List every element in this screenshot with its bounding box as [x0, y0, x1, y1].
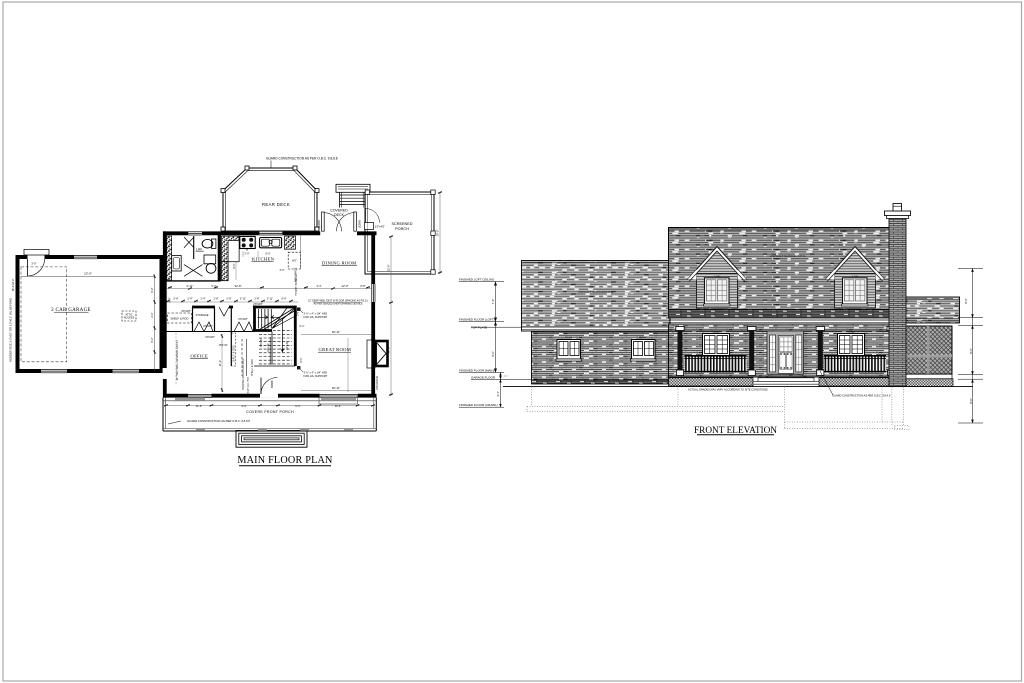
svg-text:8'-0": 8'-0" [964, 298, 968, 304]
svg-text:SHELF & ROD: SHELF & ROD [171, 317, 189, 321]
svg-text:KITCHEN: KITCHEN [252, 257, 275, 262]
svg-text:2'-0": 2'-0" [245, 253, 250, 256]
svg-text:8'-4": 8'-4" [282, 298, 287, 301]
svg-text:6'0": 6'0" [292, 259, 297, 263]
svg-text:SHELF & ROD: SHELF & ROD [251, 359, 254, 376]
svg-text:DECK: DECK [334, 213, 345, 217]
svg-text:2-2430: 2-2430 [565, 337, 573, 339]
svg-text:4'-1": 4'-1" [496, 391, 500, 397]
svg-text:ACTUAL GRADES MAY VARY ACC: ACTUAL GRADES MAY VARY ACCORDING TO SITE… [688, 388, 769, 392]
svg-text:7 ¼": 7 ¼" [504, 375, 509, 378]
svg-text:HEADER SIZE 3-2"x10" OR 3.5"x1: HEADER SIZE 3-2"x10" OR 3.5"x11" LVL BEY… [9, 298, 13, 362]
svg-text:GUARD CONSTRUCTION AS PER: GUARD CONSTRUCTION AS PER O.B.C. 9.8.8.8 [187, 419, 250, 423]
svg-text:ASPHALT SHINGLES P.G.: ASPHALT SHINGLES P.G. [770, 254, 806, 258]
svg-text:7'-2": 7'-2" [491, 299, 495, 305]
svg-text:DN 13R: DN 13R [267, 343, 270, 352]
svg-text:42" HIGH WALL W/ WOOD CAP B.I.: 42" HIGH WALL W/ WOOD CAP B.I. [176, 339, 179, 380]
svg-text:GUARD CONSTRUCTION AS PER: GUARD CONSTRUCTION AS PER O.B.C. 9.8.8.8 [832, 393, 891, 397]
svg-text:OFFICE: OFFICE [191, 354, 209, 359]
svg-text:REAR DECK: REAR DECK [262, 202, 290, 207]
svg-text:2-2446: 2-2446 [713, 332, 721, 334]
svg-text:6'-0": 6'-0" [169, 297, 172, 302]
svg-text:DINING ROOM: DINING ROOM [322, 261, 357, 266]
svg-text:2'-8": 2'-8" [227, 298, 232, 301]
svg-text:FINISHED FLOOR (LOFT): FINISHED FLOOR (LOFT) [459, 318, 495, 322]
svg-text:TOP PLATE: TOP PLATE [471, 326, 487, 330]
svg-text:3'-0": 3'-0" [280, 269, 285, 272]
svg-text:19'-0": 19'-0" [387, 346, 391, 353]
svg-text:UP 14R: UP 14R [286, 341, 289, 350]
svg-text:2'8"x6'8": 2'8"x6'8" [205, 336, 215, 339]
svg-text:DN 13R: DN 13R [260, 338, 263, 347]
svg-text:8'-0": 8'-0" [969, 398, 973, 404]
svg-text:15'4"x9': 15'4"x9' [219, 344, 228, 347]
svg-text:10'-4": 10'-4" [335, 404, 342, 408]
svg-text:SHELF & ROD: SHELF & ROD [233, 345, 236, 362]
svg-text:12'-0": 12'-0" [387, 264, 391, 271]
svg-text:4'-0": 4'-0" [241, 404, 246, 408]
svg-text:(2)2668: (2)2668 [360, 219, 362, 228]
svg-text:2'-8": 2'-8" [214, 298, 219, 301]
svg-text:16'-0"x8'-0": 16'-0"x8'-0" [11, 278, 15, 291]
svg-text:ACCESS: ACCESS [124, 317, 135, 320]
svg-text:8'-0": 8'-0" [969, 348, 973, 354]
svg-text:FINISHED FLOOR (MAIN): FINISHED FLOOR (MAIN) [459, 369, 495, 373]
svg-text:2'-4": 2'-4" [188, 298, 193, 301]
svg-text:8'-0": 8'-0" [266, 253, 271, 256]
svg-text:6'-1": 6'-1" [300, 325, 305, 328]
svg-text:FOR LVL SUPPORT: FOR LVL SUPPORT [304, 315, 328, 319]
svg-text:3'-11": 3'-11" [240, 298, 246, 301]
svg-text:FOR LVL SUPPORT: FOR LVL SUPPORT [304, 374, 328, 378]
svg-text:PROVIDE SOLID BLOCKING: PROVIDE SOLID BLOCKING [242, 358, 245, 390]
svg-text:6'-2": 6'-2" [150, 287, 154, 292]
svg-text:2'-8": 2'-8" [255, 298, 260, 301]
svg-text:2'8"x6'8": 2'8"x6'8" [253, 303, 263, 306]
svg-text:8'-8": 8'-8" [361, 285, 366, 288]
svg-text:B2668: B2668 [270, 380, 274, 388]
svg-text:LAV.: LAV. [196, 247, 203, 251]
svg-text:7'0"x6'8" PATIO DR: 7'0"x6'8" PATIO DR [295, 274, 298, 296]
svg-text:22'-0": 22'-0" [84, 272, 92, 276]
svg-text:6'-0": 6'-0" [295, 404, 300, 408]
svg-text:8'-0": 8'-0" [233, 263, 236, 268]
svg-text:GARAGE FLOOR: GARAGE FLOOR [471, 375, 496, 379]
svg-text:FINISHED LOFT CEILING: FINISHED LOFT CEILING [459, 278, 495, 282]
svg-text:2'-11": 2'-11" [187, 284, 194, 288]
svg-text:2'0"x4'6": 2'0"x4'6" [375, 224, 385, 228]
svg-text:FINISHED FLOOR (CRAWL): FINISHED FLOOR (CRAWL) [459, 403, 498, 407]
svg-text:10'-0": 10'-0" [436, 229, 440, 236]
svg-text:2-2436: 2-2436 [714, 276, 721, 278]
svg-text:18'-11": 18'-11" [332, 330, 340, 334]
svg-text:GUARD CONSTRUCTION AS PER: GUARD CONSTRUCTION AS PER O.B.C. 9.8.8.8 [266, 157, 338, 161]
svg-text:STORAGE: STORAGE [195, 313, 208, 317]
svg-text:5'-8": 5'-8" [174, 298, 179, 301]
svg-text:18'-11": 18'-11" [332, 386, 340, 390]
svg-text:AS PER SEALED SHOP DRAWING DET: AS PER SEALED SHOP DRAWING DETAILS [314, 302, 363, 305]
svg-text:2'6"x6'8": 2'6"x6'8" [238, 318, 248, 321]
svg-text:3'-6": 3'-6" [297, 311, 300, 316]
svg-text:(2)2668: (2)2668 [319, 219, 321, 228]
svg-text:MAIN FLOOR PLAN: MAIN FLOOR PLAN [237, 455, 333, 466]
svg-text:3'-11": 3'-11" [267, 298, 273, 301]
svg-text:AT 24" O.C. TYP.: AT 24" O.C. TYP. [247, 376, 250, 395]
svg-text:PORCH: PORCH [395, 227, 409, 231]
svg-text:11'-2": 11'-2" [218, 360, 222, 366]
svg-text:3'-4": 3'-4" [317, 285, 322, 288]
svg-text:6'-2": 6'-2" [150, 337, 154, 342]
svg-text:9'-0": 9'-0" [491, 351, 495, 357]
svg-text:12'-8": 12'-8" [234, 284, 241, 288]
svg-text:ASPHALT SHINGLES P.G.: ASPHALT SHINGLES P.G. [578, 290, 614, 294]
svg-text:12'-0": 12'-0" [341, 284, 348, 288]
svg-text:3'-0": 3'-0" [31, 262, 36, 266]
svg-text:ASPHALT SHINGLES P.G.: ASPHALT SHINGLES P.G. [763, 314, 797, 318]
svg-text:2'6"x6'8": 2'6"x6'8" [203, 325, 213, 328]
svg-text:GREAT ROOM: GREAT ROOM [319, 347, 352, 352]
svg-text:SCREENED: SCREENED [391, 222, 412, 226]
svg-text:ATRIUM DR: ATRIUM DR [375, 376, 379, 390]
svg-text:8'-1": 8'-1" [300, 357, 303, 362]
svg-text:4'6"x6'8": 4'6"x6'8" [181, 310, 191, 313]
svg-text:11'-6": 11'-6" [196, 404, 202, 408]
svg-text:COVERE FRONT PORCH: COVERE FRONT PORCH [246, 410, 294, 414]
svg-text:2'-4": 2'-4" [201, 298, 206, 301]
svg-text:2'-2": 2'-2" [150, 312, 154, 317]
svg-text:COVERED: COVERED [330, 209, 348, 213]
